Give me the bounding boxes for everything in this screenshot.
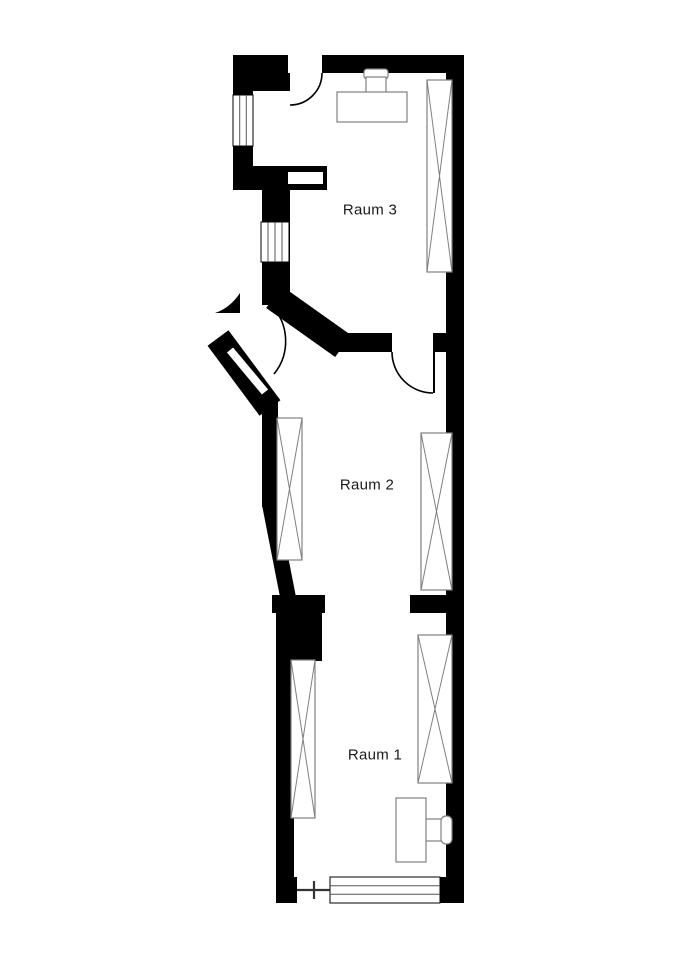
- desk-top: [396, 798, 426, 862]
- desk-top: [337, 92, 407, 122]
- chair-seat-icon: [425, 819, 443, 841]
- wall-left-upper-a: [233, 73, 253, 97]
- shelf-niche: [288, 172, 323, 184]
- wall-divider-r3-r2: [330, 333, 392, 352]
- wardrobe-symbol-raum2-left: [277, 418, 302, 560]
- room-label-raum-1: Raum 1: [348, 747, 402, 764]
- wall-bottom-left-corner: [276, 877, 297, 903]
- wall-divider-r3-r2-stub: [433, 333, 446, 352]
- desk-symbol-raum1: [396, 798, 452, 862]
- wall-top-corner-block: [253, 73, 290, 91]
- wardrobe-symbol-raum2-right: [421, 433, 452, 590]
- wall-divider-r2-r1-left: [272, 595, 325, 613]
- chair-backrest-icon: [441, 816, 452, 844]
- door-swing-arc-top: [290, 73, 322, 105]
- floor-plan: Raum 3 Raum 2 Raum 1: [0, 0, 679, 960]
- wall-top-left: [233, 55, 288, 73]
- window-symbol-bottom: [330, 877, 440, 903]
- door-leaf-wedge: [215, 293, 240, 313]
- wardrobe-symbol-raum3: [427, 80, 452, 272]
- room-label-raum-2: Raum 2: [340, 477, 394, 494]
- wardrobe-symbol-raum1-right: [418, 635, 452, 783]
- wall-divider-r2-r1-right: [410, 595, 446, 613]
- wardrobe-symbol-raum1-left: [291, 660, 315, 818]
- wall-left-column: [276, 611, 322, 661]
- wall-left-upper-b: [233, 145, 253, 168]
- wall-left-raum2: [262, 400, 278, 507]
- wall-top-right: [322, 55, 464, 73]
- wall-bottom-right-corner: [440, 877, 464, 903]
- room-label-raum-3: Raum 3: [343, 202, 397, 219]
- desk-symbol-raum3: [337, 69, 407, 122]
- window-symbol-left-upper: [233, 95, 253, 146]
- threshold-symbol-bottom: [297, 881, 330, 899]
- window-symbol-left-lower: [261, 222, 289, 262]
- door-swing-arc-r3-r2: [392, 352, 433, 393]
